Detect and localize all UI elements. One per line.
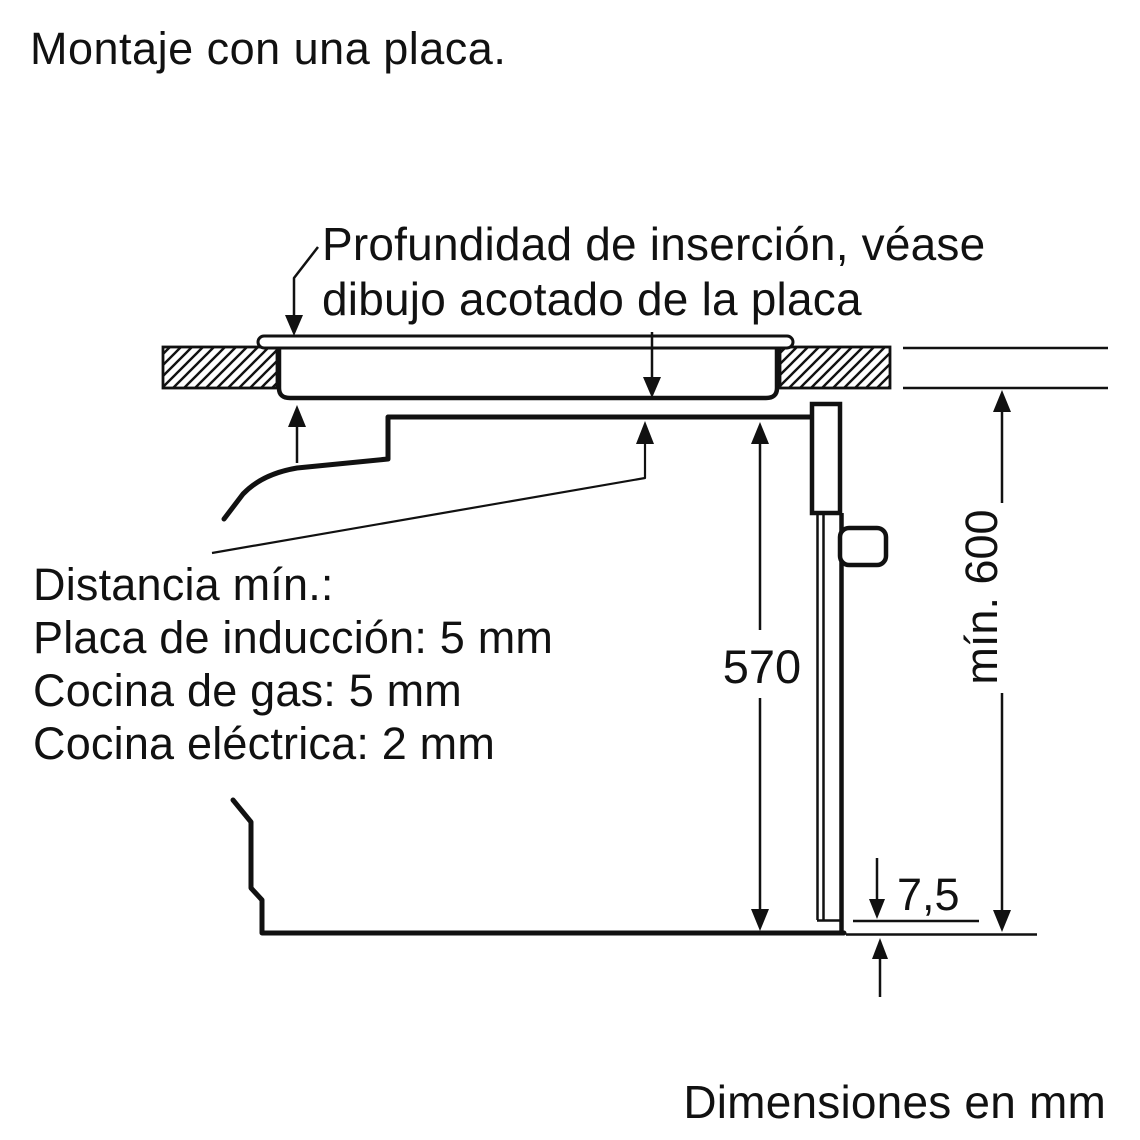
page-title: Montaje con una placa.: [30, 23, 506, 74]
hob-assembly: [279, 348, 777, 398]
units-note: Dimensiones en mm: [683, 1076, 1106, 1128]
min-distance-heading: Distancia mín.:: [33, 559, 334, 610]
oven-installation-diagram: 570 mín. 600 7,5 Montaje con una placa. …: [0, 0, 1140, 1140]
hob-glass-plate: [258, 336, 793, 348]
dim-600-label: mín. 600: [956, 509, 1007, 684]
min-distance-gas: Cocina de gas: 5 mm: [33, 665, 462, 716]
installation-diagram-page: 570 mín. 600 7,5 Montaje con una placa. …: [0, 0, 1140, 1140]
worktop-left-hatched-block: [163, 347, 277, 388]
insertion-note-line2: dibujo acotado de la placa: [322, 273, 862, 325]
dim-570-label: 570: [723, 640, 801, 693]
dim-75-label: 7,5: [897, 869, 960, 920]
oven-control-knob: [840, 528, 886, 565]
worktop-right-hatched-block: [780, 347, 890, 388]
oven-control-panel-frame: [812, 404, 840, 513]
insertion-note-line1: Profundidad de inserción, véase: [322, 218, 985, 270]
hob-tub: [279, 348, 777, 398]
min-distance-induction: Placa de inducción: 5 mm: [33, 612, 553, 663]
min-distance-electric: Cocina eléctrica: 2 mm: [33, 718, 495, 769]
